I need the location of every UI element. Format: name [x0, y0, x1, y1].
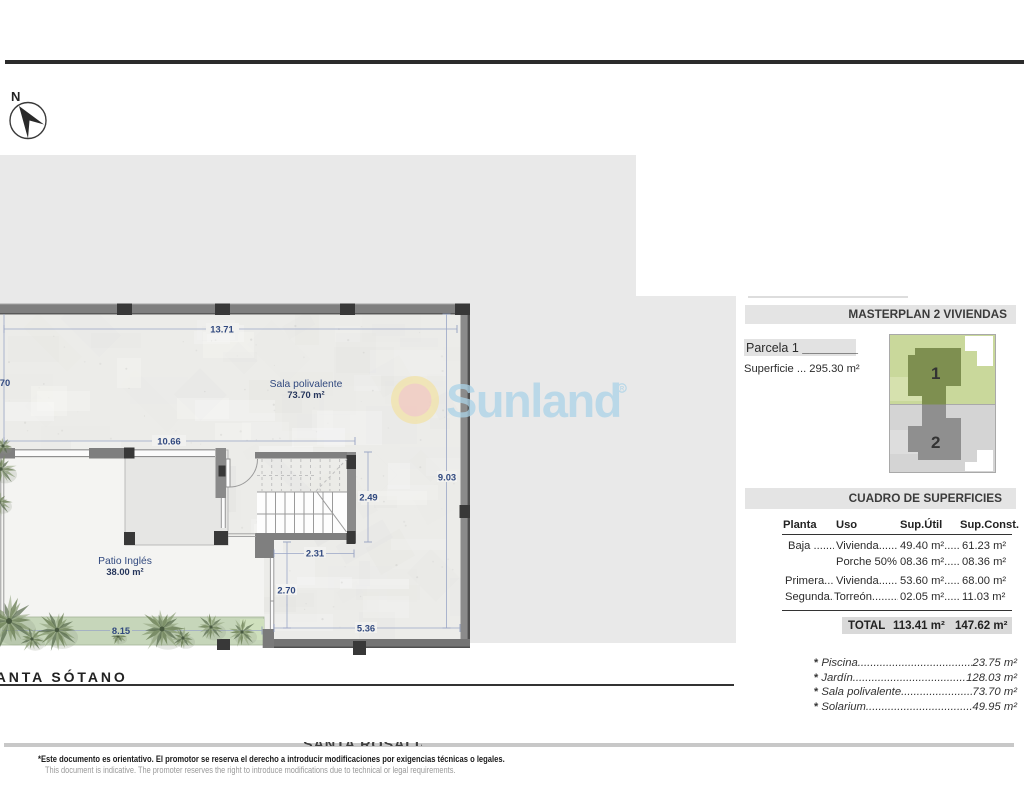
svg-text:N: N [11, 89, 20, 104]
svg-text:2.49: 2.49 [359, 492, 377, 503]
svg-text:5.36: 5.36 [357, 623, 375, 634]
svg-text:13.71: 13.71 [210, 324, 233, 335]
svg-text:2.31: 2.31 [306, 548, 324, 559]
svg-text:38.00 m²: 38.00 m² [106, 567, 143, 577]
svg-text:70: 70 [0, 377, 10, 388]
svg-text:10.66: 10.66 [157, 436, 180, 447]
svg-text:Sunland: Sunland [446, 374, 621, 427]
svg-text:2.70: 2.70 [277, 585, 295, 596]
svg-text:Patio Inglés: Patio Inglés [98, 556, 152, 567]
svg-text:R: R [620, 387, 625, 393]
svg-text:73.70 m²: 73.70 m² [287, 390, 324, 400]
svg-text:9.03: 9.03 [438, 472, 456, 483]
svg-text:2: 2 [931, 433, 940, 452]
svg-text:Sala polivalente: Sala polivalente [270, 379, 343, 390]
svg-text:8.15: 8.15 [112, 625, 130, 636]
svg-text:1: 1 [931, 364, 940, 383]
